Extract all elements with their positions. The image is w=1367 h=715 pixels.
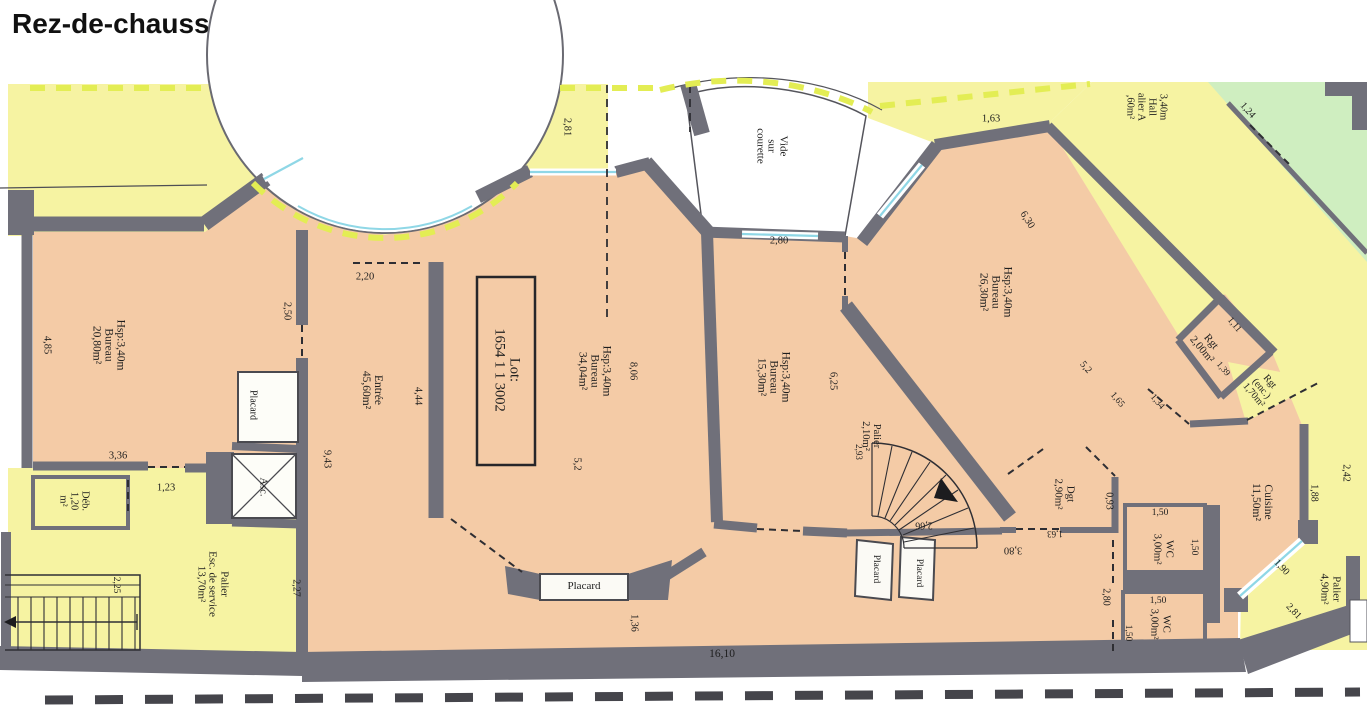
wall-notch bbox=[1350, 600, 1367, 642]
floor-plan-drawing bbox=[0, 0, 1367, 715]
floor-plan-page: Rez-de-chaussée bbox=[0, 0, 1367, 715]
street-edge-dashes bbox=[45, 692, 1360, 700]
elevator-shaft bbox=[232, 454, 296, 518]
